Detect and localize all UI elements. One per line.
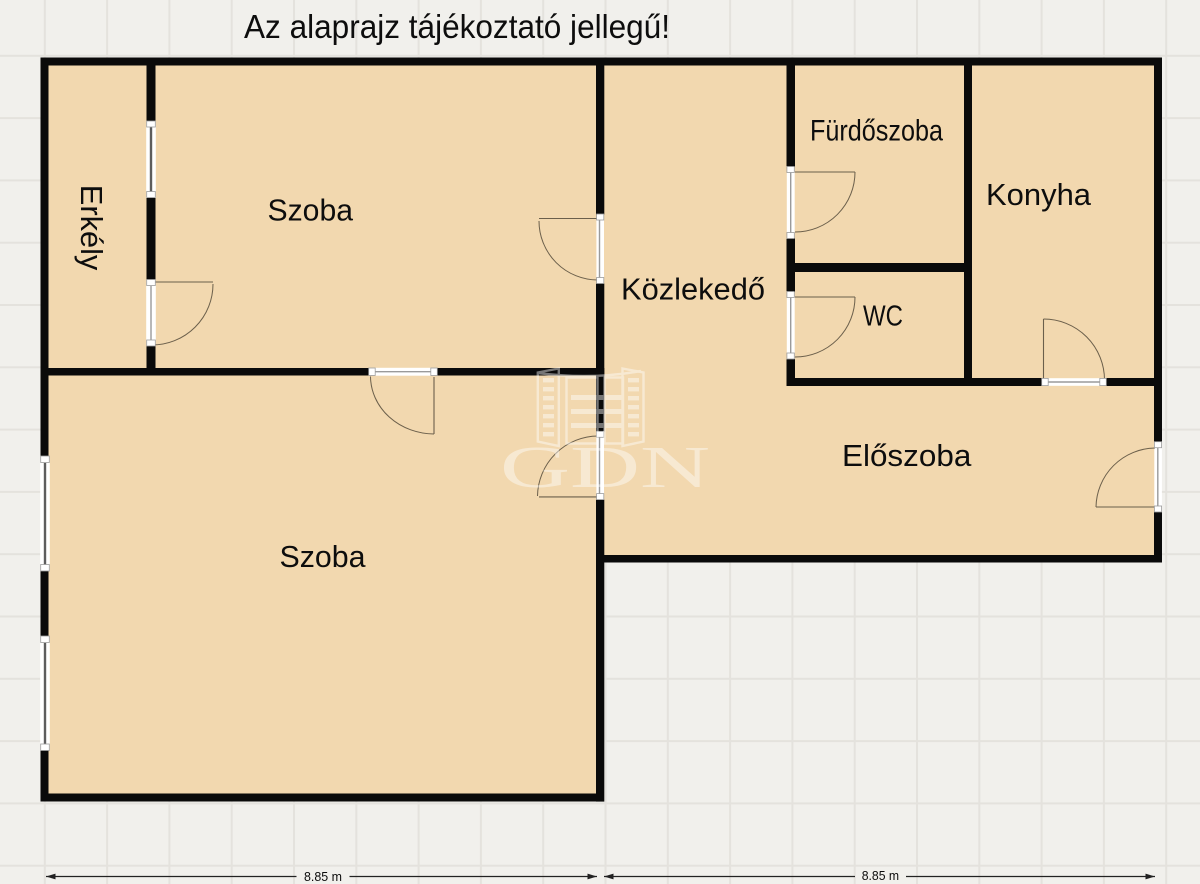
- svg-text:Szoba: Szoba: [268, 193, 354, 228]
- svg-text:Erkély: Erkély: [74, 185, 109, 271]
- svg-text:GDN: GDN: [500, 434, 710, 500]
- svg-text:8.85 m: 8.85 m: [304, 870, 342, 884]
- svg-text:Szoba: Szoba: [280, 539, 367, 574]
- svg-text:Előszoba: Előszoba: [842, 438, 972, 473]
- svg-text:Konyha: Konyha: [986, 177, 1092, 212]
- svg-text:Fürdőszoba: Fürdőszoba: [810, 115, 943, 148]
- svg-text:8.85 m: 8.85 m: [862, 869, 899, 883]
- svg-text:WC: WC: [863, 300, 903, 332]
- svg-text:Közlekedő: Közlekedő: [621, 272, 765, 307]
- svg-text:Az alaprajz tájékoztató jelleg: Az alaprajz tájékoztató jellegű!: [244, 9, 670, 46]
